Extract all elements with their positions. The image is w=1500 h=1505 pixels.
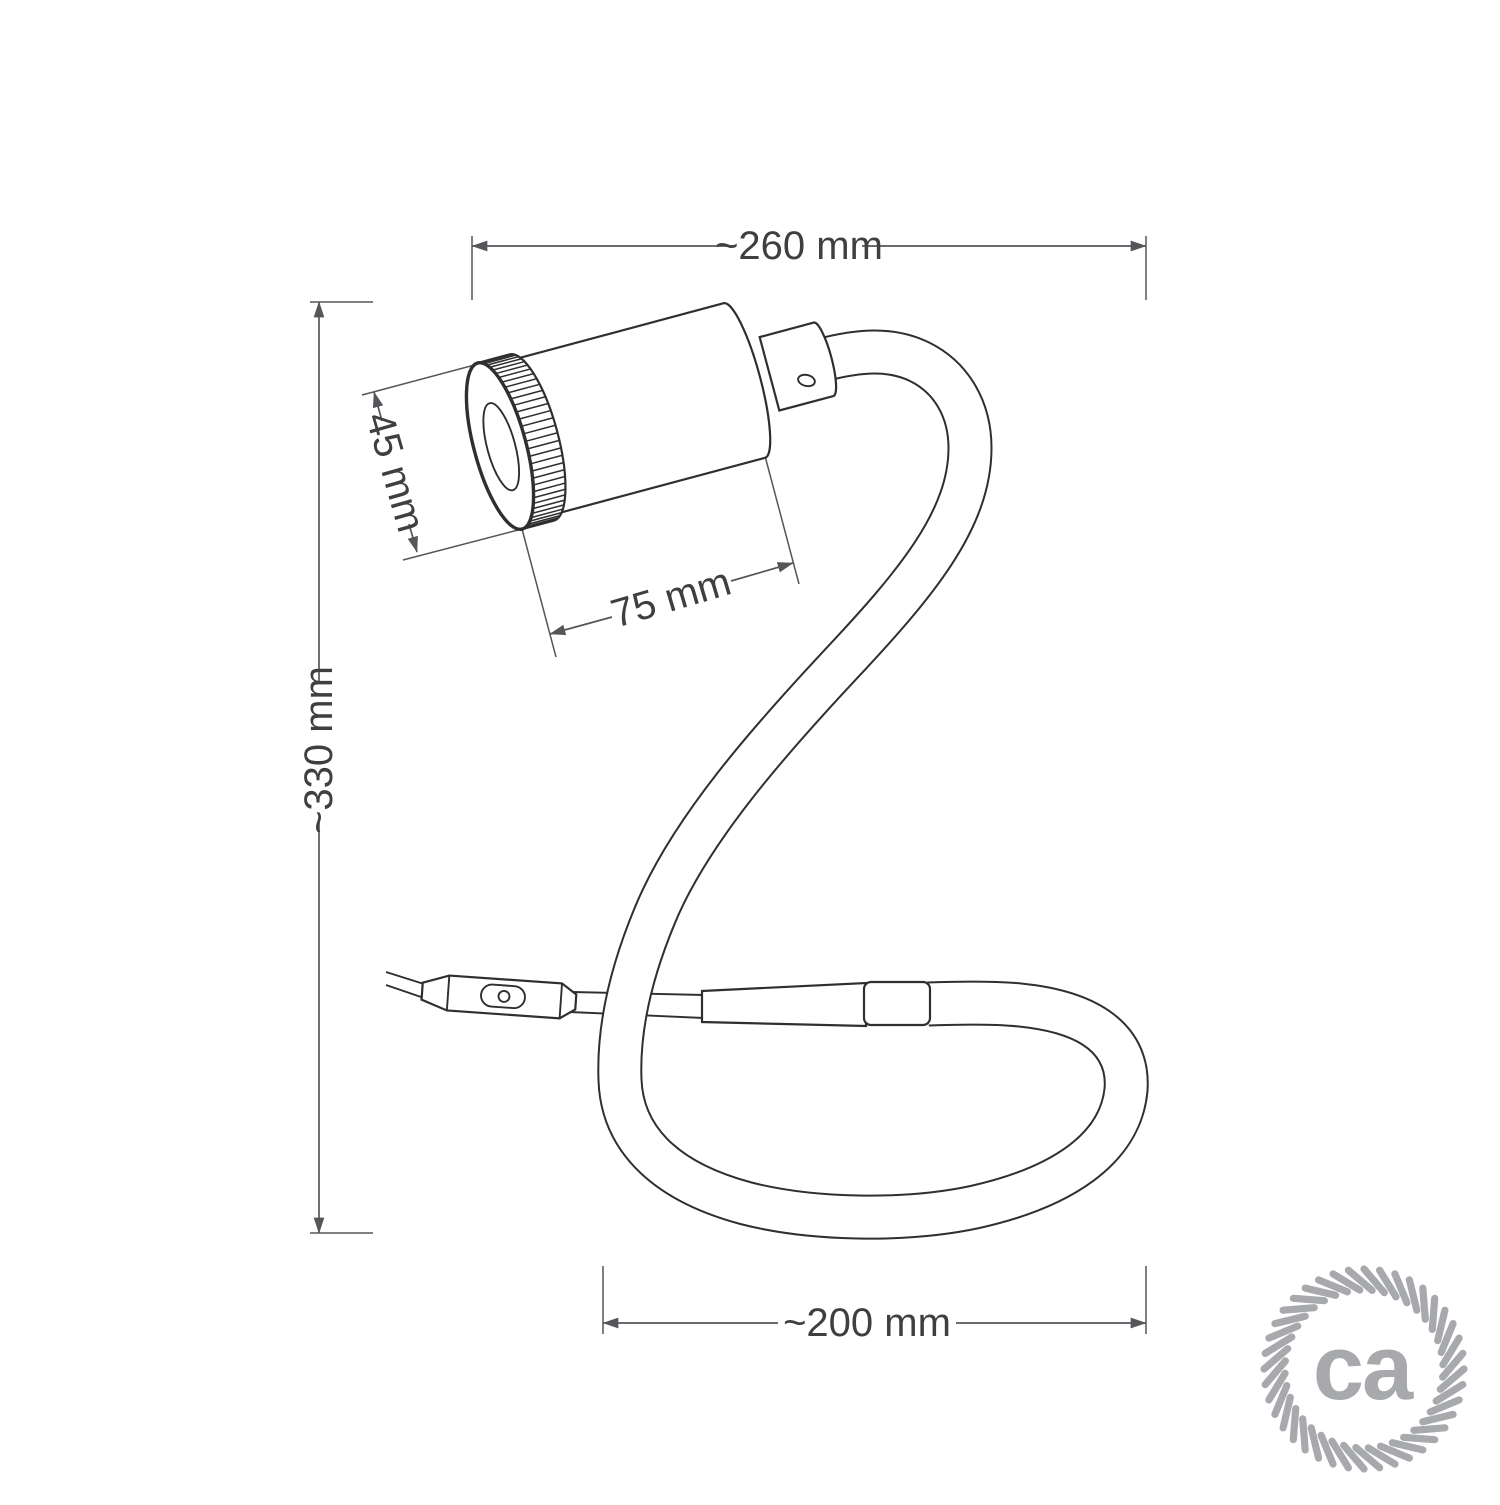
gooseneck-end-collar xyxy=(864,982,930,1025)
rope-strand xyxy=(1438,1310,1445,1340)
rope-strand xyxy=(1305,1288,1335,1295)
rope-strand xyxy=(1404,1437,1435,1439)
rope-strand xyxy=(1311,1428,1318,1458)
rope-strand xyxy=(1409,1280,1416,1310)
dimension-line xyxy=(550,617,612,634)
gooseneck-tube xyxy=(620,352,1126,1217)
dimension-label-overall-height: ~330 mm xyxy=(297,666,341,834)
rope-strand xyxy=(1275,1316,1305,1323)
gooseneck-outline xyxy=(620,352,1126,1217)
lamp-spotlight-head xyxy=(453,274,854,536)
dimension-label-spot-diameter: 45 mm xyxy=(357,407,433,537)
brand-logo-text: ca xyxy=(1313,1317,1414,1419)
brand-logo: ca xyxy=(1264,1269,1464,1469)
rope-strand xyxy=(1423,1414,1453,1421)
rope-strand xyxy=(1293,1409,1295,1440)
dimension-label-base-width: ~200 mm xyxy=(783,1301,951,1345)
extension-line xyxy=(403,529,522,560)
cord-line xyxy=(386,972,424,984)
dimension-label-overall-width: ~260 mm xyxy=(715,224,883,268)
rope-strand xyxy=(1293,1298,1324,1300)
rope-strand xyxy=(1283,1397,1290,1427)
extension-line xyxy=(765,456,799,584)
lamp-dimension-drawing: ~260 mm ~330 mm ~200 mm 45 mm 75 mm xyxy=(0,0,1500,1500)
dimension-line xyxy=(731,563,793,581)
dimension-overall-width: ~260 mm xyxy=(472,224,1146,300)
cord-sleeve xyxy=(702,983,866,1026)
rope-strand xyxy=(1414,1428,1445,1431)
extension-line xyxy=(362,363,482,395)
inline-switch xyxy=(421,974,577,1020)
rope-strand xyxy=(1303,1419,1306,1450)
extension-line xyxy=(522,529,556,657)
dimension-drawing-page: ~260 mm ~330 mm ~200 mm 45 mm 75 mm xyxy=(0,0,1500,1500)
lamp-holder xyxy=(760,321,841,411)
cord-line xyxy=(386,985,424,998)
dimension-overall-height: ~330 mm xyxy=(297,302,373,1233)
gooseneck-fill xyxy=(620,352,1126,1217)
dimension-label-spot-length: 75 mm xyxy=(606,560,736,637)
dimension-base-width: ~200 mm xyxy=(603,1266,1146,1345)
rope-strand xyxy=(1283,1308,1314,1311)
rope-strand xyxy=(1392,1443,1422,1450)
rope-strand xyxy=(1423,1288,1426,1319)
rope-strand xyxy=(1432,1298,1434,1329)
